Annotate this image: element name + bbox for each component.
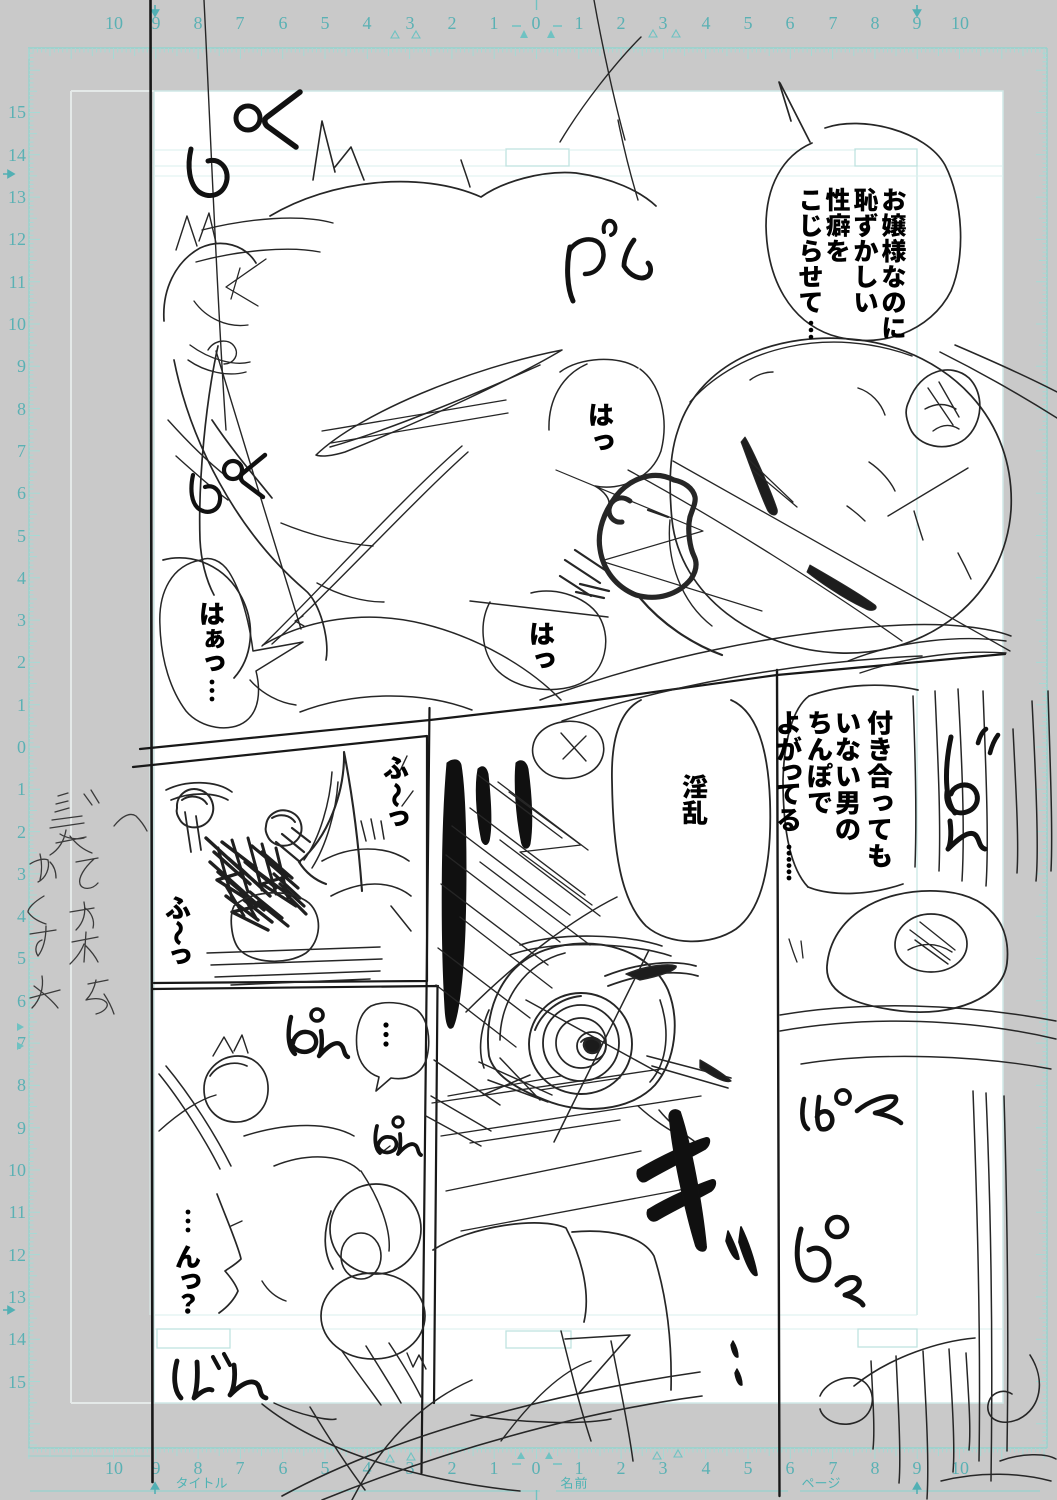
- svg-text:0: 0: [532, 13, 541, 33]
- svg-text:4: 4: [702, 1458, 711, 1478]
- svg-text:7: 7: [829, 13, 838, 33]
- svg-text:3: 3: [17, 610, 26, 630]
- svg-text:1: 1: [575, 13, 584, 33]
- svg-text:4: 4: [17, 906, 26, 926]
- svg-text:1: 1: [575, 1458, 584, 1478]
- svg-text:2: 2: [617, 13, 626, 33]
- svg-text:15: 15: [8, 1372, 26, 1392]
- svg-text:9: 9: [17, 1118, 26, 1138]
- svg-text:4: 4: [363, 13, 372, 33]
- svg-text:15: 15: [8, 102, 26, 122]
- svg-text:2: 2: [17, 652, 26, 672]
- svg-text:3: 3: [17, 864, 26, 884]
- svg-text:9: 9: [913, 1458, 922, 1478]
- svg-text:6: 6: [786, 1458, 795, 1478]
- svg-text:3: 3: [659, 1458, 668, 1478]
- svg-text:2: 2: [17, 822, 26, 842]
- svg-text:9: 9: [152, 13, 161, 33]
- svg-text:7: 7: [829, 1458, 838, 1478]
- svg-text:2: 2: [448, 1458, 457, 1478]
- svg-text:3: 3: [406, 13, 415, 33]
- svg-text:9: 9: [17, 356, 26, 376]
- svg-text:5: 5: [17, 948, 26, 968]
- svg-text:6: 6: [786, 13, 795, 33]
- svg-text:6: 6: [17, 483, 26, 503]
- svg-text:4: 4: [17, 568, 26, 588]
- svg-text:8: 8: [871, 1458, 880, 1478]
- svg-text:1: 1: [490, 13, 499, 33]
- svg-text:1: 1: [17, 779, 26, 799]
- svg-text:8: 8: [194, 13, 203, 33]
- svg-text:13: 13: [8, 1287, 26, 1307]
- svg-text:8: 8: [871, 13, 880, 33]
- svg-text:2: 2: [448, 13, 457, 33]
- svg-text:1: 1: [490, 1458, 499, 1478]
- svg-text:7: 7: [236, 1458, 245, 1478]
- svg-text:7: 7: [236, 13, 245, 33]
- svg-text:11: 11: [9, 272, 26, 292]
- svg-text:2: 2: [617, 1458, 626, 1478]
- svg-text:4: 4: [702, 13, 711, 33]
- svg-text:8: 8: [17, 1075, 26, 1095]
- svg-text:13: 13: [8, 187, 26, 207]
- svg-text:5: 5: [17, 526, 26, 546]
- svg-text:10: 10: [951, 13, 969, 33]
- svg-text:6: 6: [279, 13, 288, 33]
- svg-text:7: 7: [17, 441, 26, 461]
- svg-text:0: 0: [17, 737, 26, 757]
- svg-text:14: 14: [8, 1329, 26, 1349]
- svg-text:11: 11: [9, 1202, 26, 1222]
- svg-text:10: 10: [105, 13, 123, 33]
- svg-text:8: 8: [17, 399, 26, 419]
- svg-text:5: 5: [744, 13, 753, 33]
- svg-text:10: 10: [8, 1160, 26, 1180]
- svg-text:6: 6: [17, 991, 26, 1011]
- svg-text:12: 12: [8, 229, 26, 249]
- svg-text:5: 5: [744, 1458, 753, 1478]
- svg-text:14: 14: [8, 145, 26, 165]
- svg-text:3: 3: [659, 13, 668, 33]
- svg-text:10: 10: [105, 1458, 123, 1478]
- svg-text:1: 1: [17, 695, 26, 715]
- svg-text:0: 0: [532, 1458, 541, 1478]
- svg-text:5: 5: [321, 13, 330, 33]
- svg-text:8: 8: [194, 1458, 203, 1478]
- svg-text:10: 10: [8, 314, 26, 334]
- svg-text:6: 6: [279, 1458, 288, 1478]
- svg-text:12: 12: [8, 1245, 26, 1265]
